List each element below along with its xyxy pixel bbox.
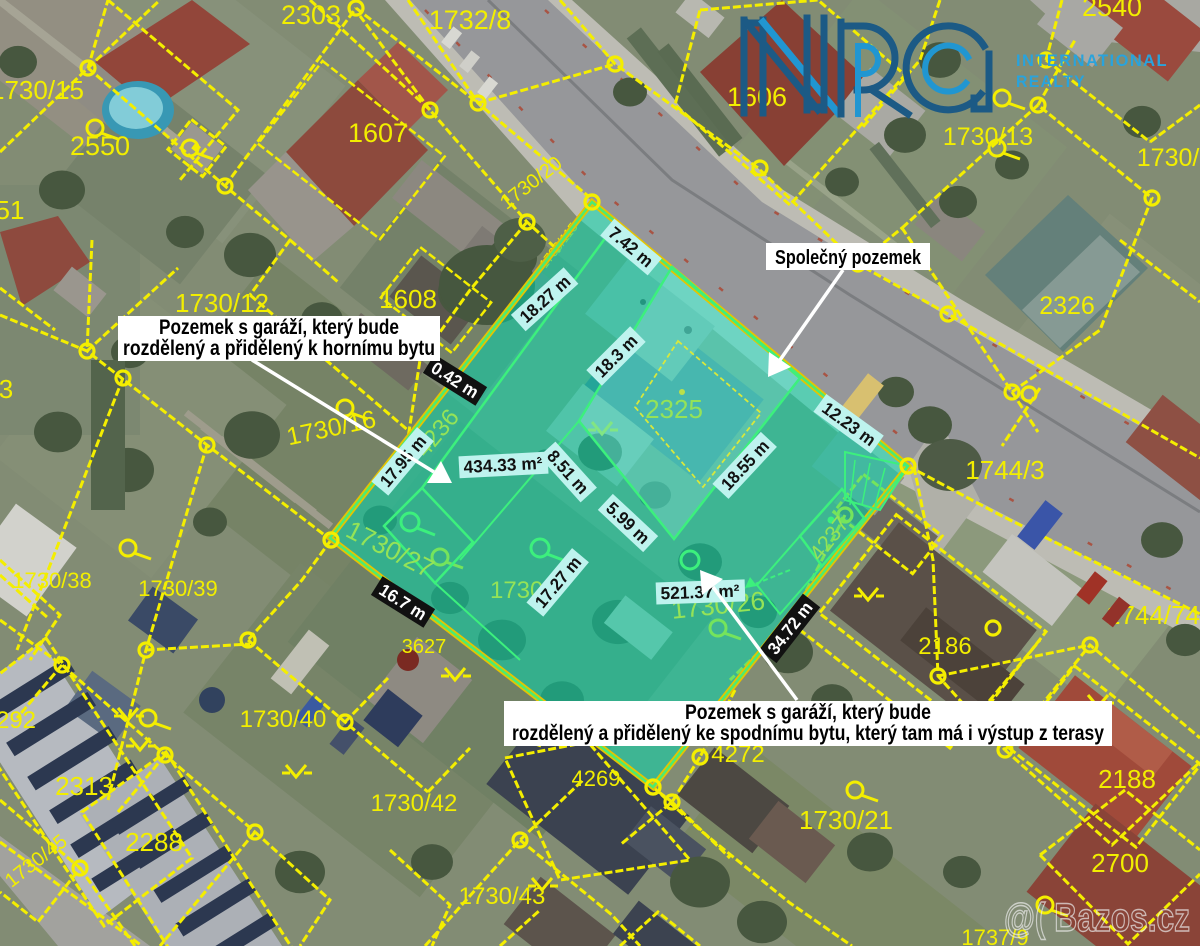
svg-text:1732/8: 1732/8 (429, 5, 512, 35)
svg-text:1730/2: 1730/2 (1137, 144, 1200, 172)
svg-text:1608: 1608 (379, 284, 437, 314)
svg-text:rozdělený a přidělený k horním: rozdělený a přidělený k hornímu bytu (123, 337, 435, 360)
svg-text:Pozemek s garáží, který bude: Pozemek s garáží, který bude (685, 701, 931, 724)
svg-text:2326: 2326 (1039, 292, 1095, 320)
svg-text:2325: 2325 (645, 394, 703, 424)
svg-text:1730/39: 1730/39 (138, 576, 218, 601)
svg-text:1744/3: 1744/3 (965, 455, 1045, 485)
svg-text:@( Bazos.cz: @( Bazos.cz (1004, 896, 1190, 940)
svg-text:2313: 2313 (55, 771, 113, 801)
svg-text:434.33 m²: 434.33 m² (463, 453, 543, 477)
svg-text:1730/43: 1730/43 (459, 883, 546, 910)
svg-text:3: 3 (0, 374, 13, 404)
svg-text:4269: 4269 (572, 766, 621, 791)
svg-text:2700: 2700 (1091, 848, 1149, 878)
svg-text:1730/38: 1730/38 (12, 568, 92, 593)
svg-text:rozdělený a přidělený ke spodn: rozdělený a přidělený ke spodnímu bytu, … (512, 722, 1104, 745)
svg-text:2540: 2540 (1082, 0, 1142, 22)
svg-text:INTERNATIONAL: INTERNATIONAL (1016, 51, 1168, 70)
svg-text:2188: 2188 (1098, 764, 1156, 794)
svg-text:1730/12: 1730/12 (175, 288, 269, 318)
svg-text:1730/42: 1730/42 (371, 790, 458, 817)
svg-text:Pozemek s garáží, který bude: Pozemek s garáží, který bude (159, 316, 399, 339)
svg-text:REALTY: REALTY (1016, 72, 1086, 91)
svg-text:521.37 m²: 521.37 m² (660, 581, 740, 604)
svg-text:1606: 1606 (727, 82, 787, 112)
svg-text:Společný pozemek: Společný pozemek (775, 247, 922, 269)
svg-text:292: 292 (0, 707, 36, 734)
svg-text:3627: 3627 (402, 636, 447, 658)
svg-text:2186: 2186 (918, 633, 971, 660)
svg-text:2550: 2550 (70, 131, 130, 161)
svg-text:1607: 1607 (348, 118, 408, 148)
svg-text:2288: 2288 (125, 827, 183, 857)
svg-text:1730/40: 1730/40 (240, 706, 327, 733)
svg-text:2303: 2303 (281, 0, 341, 30)
svg-text:1730/15: 1730/15 (0, 75, 84, 105)
svg-text:1730/13: 1730/13 (943, 123, 1033, 151)
svg-text:51: 51 (0, 195, 24, 225)
svg-text:1730/21: 1730/21 (799, 805, 893, 835)
